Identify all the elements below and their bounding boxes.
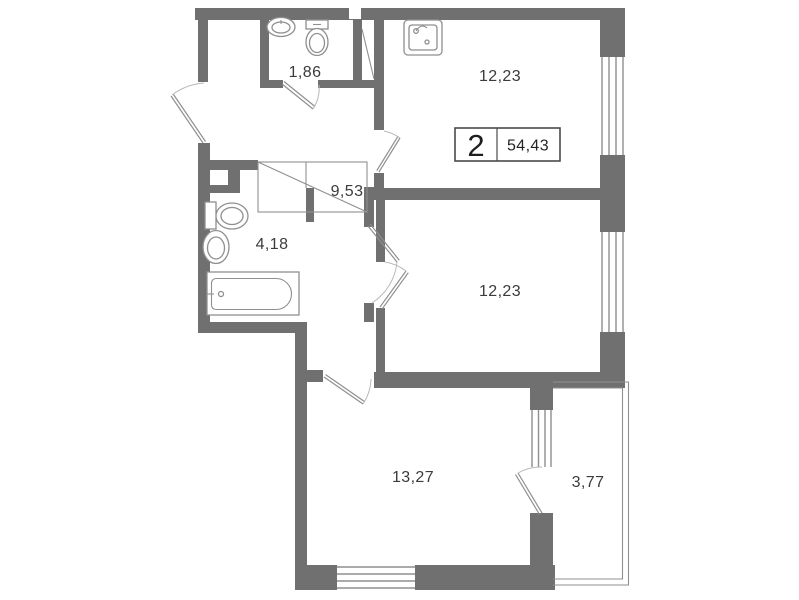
- kitchen-door: [377, 131, 400, 172]
- window-bedroom: [602, 232, 623, 332]
- wall-segment: [376, 308, 385, 374]
- room-area-label-hallway: 9,53: [331, 183, 364, 200]
- wall-segment: [364, 187, 374, 227]
- wall-segment: [210, 185, 240, 193]
- room-area-label-bedroom: 12,23: [479, 283, 521, 300]
- wall-segment: [374, 372, 625, 388]
- wall-segment: [530, 385, 553, 410]
- rooms-count-value: 2: [467, 128, 484, 163]
- bathroom-toilet-icon: [205, 202, 248, 229]
- vent-notch: [349, 8, 361, 19]
- balcony-door: [516, 467, 543, 515]
- wall-segment: [374, 8, 384, 130]
- floor-plan-drawing: 1,86 12,23 9,53 4,18 12,23 13,27 3,77 2 …: [0, 0, 799, 600]
- window-living-room: [337, 567, 415, 588]
- wall-segment: [374, 188, 604, 200]
- wall-segment: [306, 188, 314, 222]
- wall-segment: [415, 565, 555, 590]
- summary-box: 2 54,43: [455, 128, 560, 163]
- kitchen-sink-icon: [404, 20, 442, 55]
- bathtub-icon: [207, 272, 299, 315]
- wall-segment: [600, 8, 625, 57]
- wall-segment: [195, 8, 625, 20]
- wall-segment: [198, 322, 307, 333]
- wall-segment: [295, 333, 307, 565]
- wall-segment: [228, 170, 240, 185]
- bedroom-door: [380, 262, 408, 309]
- room-area-label-kitchen: 12,23: [479, 68, 521, 85]
- room-area-label-living-room: 13,27: [392, 469, 434, 486]
- living-room-door: [324, 375, 371, 404]
- room-area-label-bathroom: 4,18: [256, 236, 289, 253]
- room-area-label-balcony: 3,77: [572, 474, 605, 491]
- wall-segment: [353, 20, 362, 80]
- room-area-label-wc: 1,86: [289, 64, 322, 81]
- total-area-value: 54,43: [507, 138, 549, 155]
- window-balcony-wall: [532, 410, 551, 467]
- wall-segment: [295, 565, 337, 590]
- wall-segment: [210, 160, 258, 170]
- vent-shaft-icon: [362, 29, 374, 79]
- wall-segment: [260, 80, 283, 88]
- entrance-door: [171, 83, 206, 143]
- wc-door: [282, 82, 319, 110]
- wall-segment: [198, 20, 208, 82]
- floor-plan-page: 1,86 12,23 9,53 4,18 12,23 13,27 3,77 2 …: [0, 0, 799, 600]
- wc-sink-icon: [267, 18, 295, 37]
- bathroom-sink-icon: [203, 231, 229, 264]
- wall-segment: [364, 303, 374, 322]
- wc-toilet-icon: [306, 20, 328, 56]
- window-kitchen: [602, 57, 623, 155]
- wall-segment: [376, 200, 385, 262]
